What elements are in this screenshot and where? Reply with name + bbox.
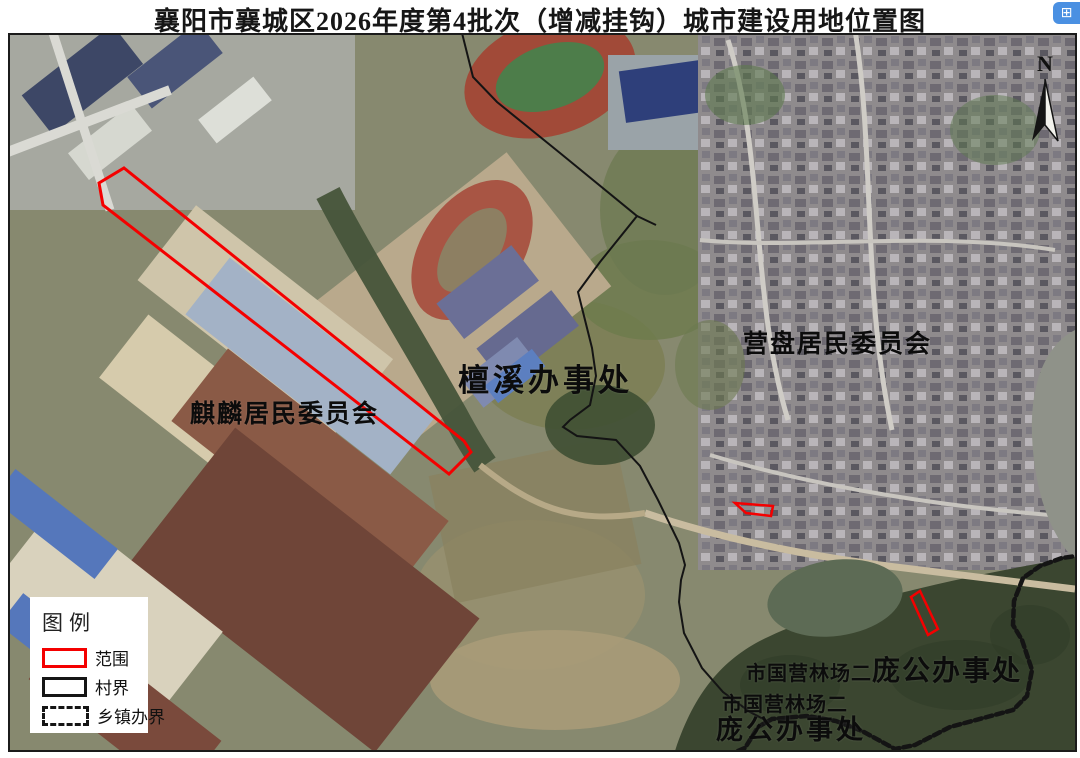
label-tanxi-office: 檀溪办事处 (458, 365, 633, 398)
legend-item-label: 乡镇办界 (97, 703, 165, 728)
label-forest-farm-prefix: 市国营林场二 (746, 663, 872, 685)
label-pangong-office: 庞公办事处 (716, 716, 866, 744)
map-canvas: N 檀溪办事处 营盘居民委员会 麒麟居民委员会 市国营林场二庞公办事处 市国营林… (8, 33, 1077, 752)
township-boundary-symbol-icon (42, 706, 89, 726)
label-qilin-committee: 麒麟居民委员会 (190, 402, 379, 428)
legend-item-label: 范围 (95, 645, 129, 670)
legend-item-label: 村界 (95, 674, 129, 699)
grid-window-icon: ⊞ (1061, 5, 1073, 21)
village-boundary-symbol-icon (42, 677, 87, 697)
label-forest-farm-pangong: 市国营林场二庞公办事处 (746, 657, 1022, 686)
north-label: N (1037, 51, 1053, 76)
range-symbol-icon (42, 648, 87, 668)
legend-item-range: 范围 (42, 647, 148, 668)
legend-item-village-boundary: 村界 (42, 676, 148, 697)
legend: 图例 范围 村界 乡镇办界 (30, 597, 148, 733)
label-forest-farm-2: 市国营林场二 (722, 695, 848, 716)
floating-app-badge[interactable]: ⊞ (1053, 2, 1080, 24)
legend-title: 图例 (42, 607, 148, 637)
label-yingpan-committee: 营盘居民委员会 (743, 332, 932, 358)
legend-item-township-boundary: 乡镇办界 (42, 705, 148, 726)
label-pangong-suffix: 庞公办事处 (872, 656, 1022, 687)
